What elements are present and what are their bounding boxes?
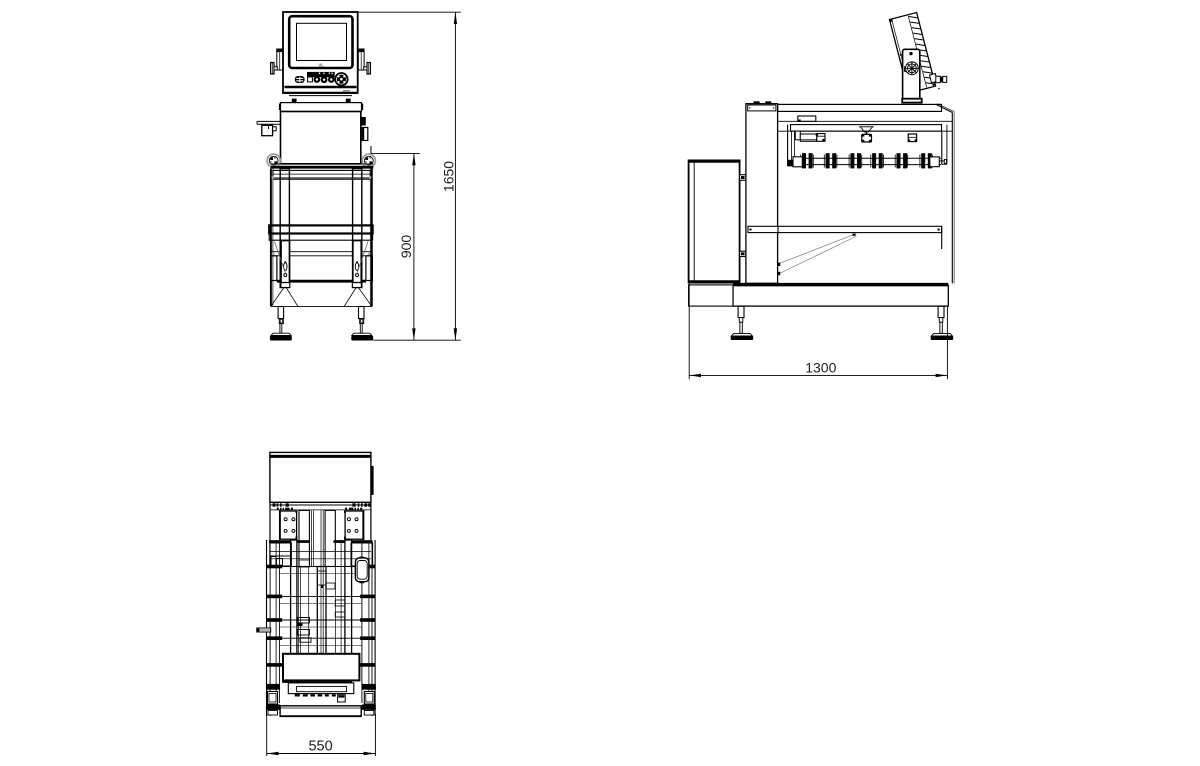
svg-text:1650: 1650 [441, 161, 457, 192]
svg-text:VL: VL [318, 63, 324, 68]
svg-text:550: 550 [308, 738, 332, 754]
svg-text:1300: 1300 [805, 360, 836, 376]
svg-text:900: 900 [398, 235, 414, 259]
